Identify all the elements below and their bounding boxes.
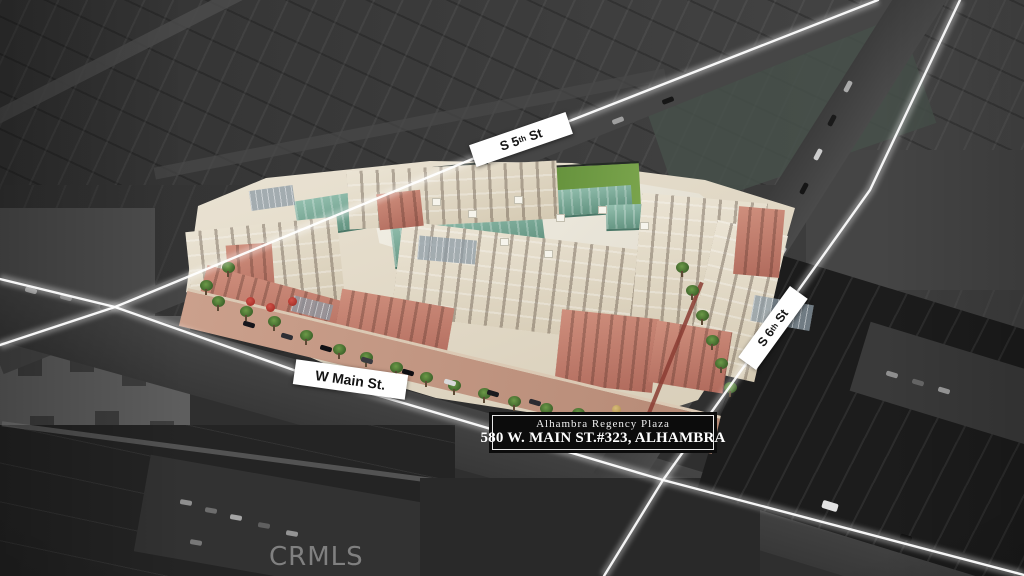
street-highlight-lines (0, 0, 1024, 576)
banner-property-name: Alhambra Regency Plaza (536, 419, 670, 430)
street-line-s-5th (0, 0, 878, 345)
street-label-text: W Main St. (314, 367, 386, 393)
crmls-watermark: CRMLS (269, 542, 364, 572)
banner-address: 580 W. MAIN ST.#323, ALHAMBRA (480, 431, 725, 446)
address-banner: Alhambra Regency Plaza 580 W. MAIN ST.#3… (489, 412, 717, 453)
aerial-photo: S 5th St W Main St. S 6th St Alhambra Re… (0, 0, 1024, 576)
